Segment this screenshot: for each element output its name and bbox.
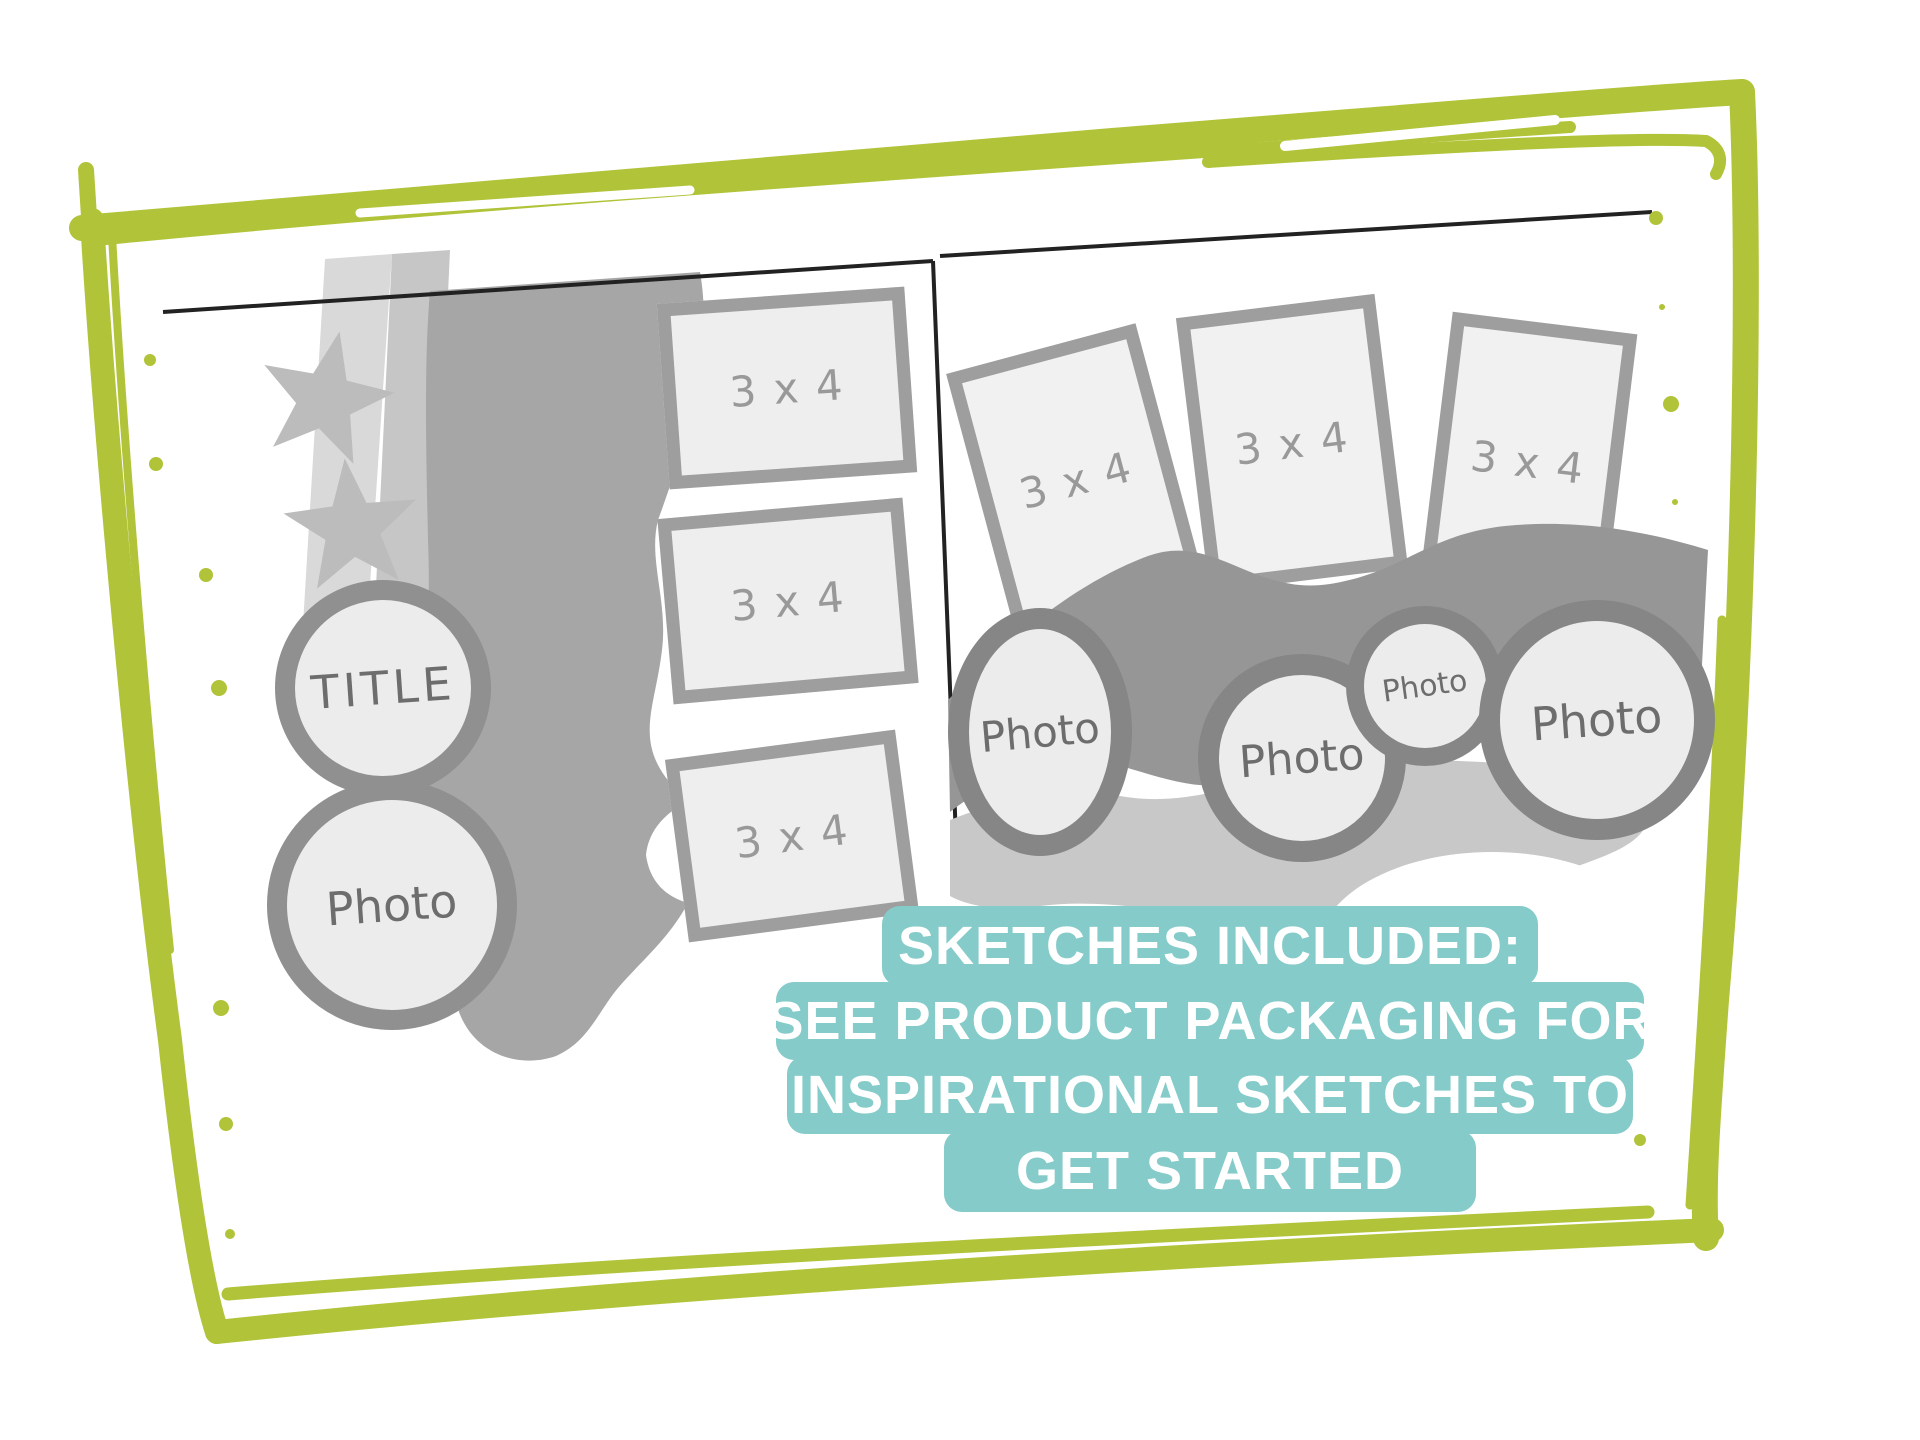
photo-label: Photo — [325, 873, 460, 936]
notice-box-line-1: SKETCHES INCLUDED: — [882, 906, 1538, 986]
title-label: TITLE — [309, 656, 457, 720]
photo-slot-3x4: 3 x 4 — [1419, 312, 1638, 613]
slot-size-label: 3 x 4 — [728, 360, 846, 417]
notice-text: INSPIRATIONAL SKETCHES TO — [791, 1064, 1629, 1126]
notice-box-line-3: INSPIRATIONAL SKETCHES TO — [787, 1056, 1633, 1134]
frame-highlight — [360, 190, 690, 213]
slot-size-label: 3 x 4 — [732, 804, 852, 868]
photo-slot-3x4: 3 x 4 — [665, 730, 919, 943]
photo-label: Photo — [1380, 663, 1470, 710]
title-circle: TITLE — [275, 580, 491, 796]
notice-text: GET STARTED — [1016, 1140, 1404, 1202]
photo-slot-3x4: 3 x 4 — [657, 498, 918, 705]
photo-slot-3x4: 3 x 4 — [657, 287, 917, 490]
photo-circle: Photo — [948, 608, 1132, 856]
photo-slot-3x4: 3 x 4 — [946, 323, 1206, 636]
photo-label: Photo — [978, 702, 1102, 761]
notice-box-line-4: GET STARTED — [944, 1130, 1476, 1212]
slot-size-label: 3 x 4 — [1232, 412, 1352, 475]
frame-highlight — [1285, 120, 1555, 146]
notice-box-line-2: SEE PRODUCT PACKAGING FOR — [776, 982, 1644, 1060]
slot-size-label: 3 x 4 — [729, 572, 848, 631]
slot-size-label: 3 x 4 — [1468, 431, 1588, 494]
notice-text: SEE PRODUCT PACKAGING FOR — [767, 990, 1652, 1052]
star-icon — [248, 318, 405, 470]
slot-size-label: 3 x 4 — [1014, 441, 1138, 518]
photo-circle: Photo — [1479, 600, 1715, 840]
photo-slot-3x4: 3 x 4 — [1176, 294, 1408, 592]
photo-label: Photo — [1530, 688, 1665, 751]
page-spread-divider — [933, 261, 958, 888]
notice-text: SKETCHES INCLUDED: — [898, 915, 1522, 977]
right-page-top-line — [940, 212, 1652, 256]
scrapbook-sketch-graphic: 3 x 4 3 x 4 3 x 4 3 x 4 3 x 4 3 x 4 TITL… — [0, 0, 1920, 1440]
star-icon — [278, 451, 424, 591]
photo-circle: Photo — [267, 780, 517, 1030]
photo-label: Photo — [1238, 728, 1367, 788]
